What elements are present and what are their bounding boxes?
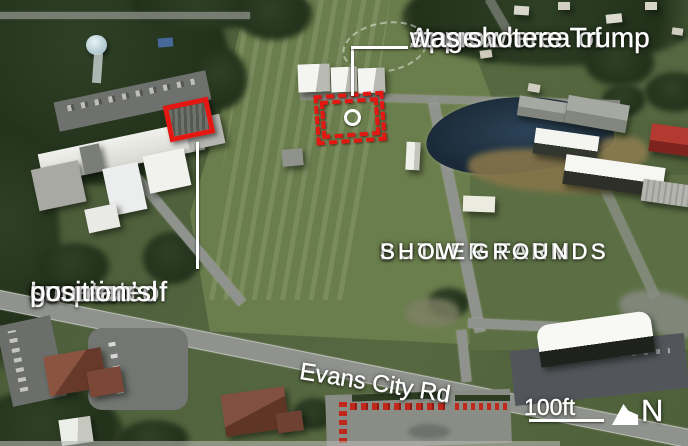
stage-center-circle xyxy=(344,109,361,126)
house-roof xyxy=(672,27,684,35)
restaurant-wing xyxy=(86,366,124,398)
asphalt-smudge xyxy=(408,424,450,439)
house-2-garage xyxy=(276,410,305,433)
gunman-leader-line xyxy=(196,142,199,269)
house-roof xyxy=(645,2,657,10)
house-roof xyxy=(514,5,530,15)
house-roof xyxy=(558,2,570,10)
stage-leader-line-horizontal xyxy=(351,46,408,49)
agr-white-wing-2 xyxy=(142,148,191,194)
blue-roof-shed xyxy=(158,37,174,47)
white-narrow-building xyxy=(405,142,420,171)
shed-3 xyxy=(358,68,386,94)
small-white-barn xyxy=(463,195,496,212)
road-top xyxy=(0,12,250,19)
scale-bar xyxy=(529,419,604,422)
scale-label: 100ft xyxy=(524,394,575,421)
small-gray-shed xyxy=(281,148,303,167)
restaurant-building xyxy=(42,332,154,428)
aerial-map: Approx. area of stage where Trump was sh… xyxy=(0,0,688,446)
shed-1 xyxy=(298,63,331,92)
agr-small-roof xyxy=(84,203,120,233)
stage-leader-line-vertical xyxy=(351,46,354,96)
worn-path-patch xyxy=(405,298,460,328)
photo-bottom-edge xyxy=(0,441,560,446)
gunman-annotation-line: position xyxy=(30,276,127,307)
tractor-row-2 xyxy=(455,403,510,410)
north-label: N xyxy=(641,393,663,429)
hedge-row-2 xyxy=(455,395,510,401)
red-roof-barn xyxy=(648,123,688,157)
house-2 xyxy=(220,381,327,446)
stage-annotation-line: was shot xyxy=(410,23,521,53)
house-roof xyxy=(527,83,540,93)
agr-gray-wing xyxy=(31,160,87,211)
venue-name-line: SHOW GROUNDS xyxy=(380,238,609,266)
tractor-column xyxy=(339,398,347,443)
